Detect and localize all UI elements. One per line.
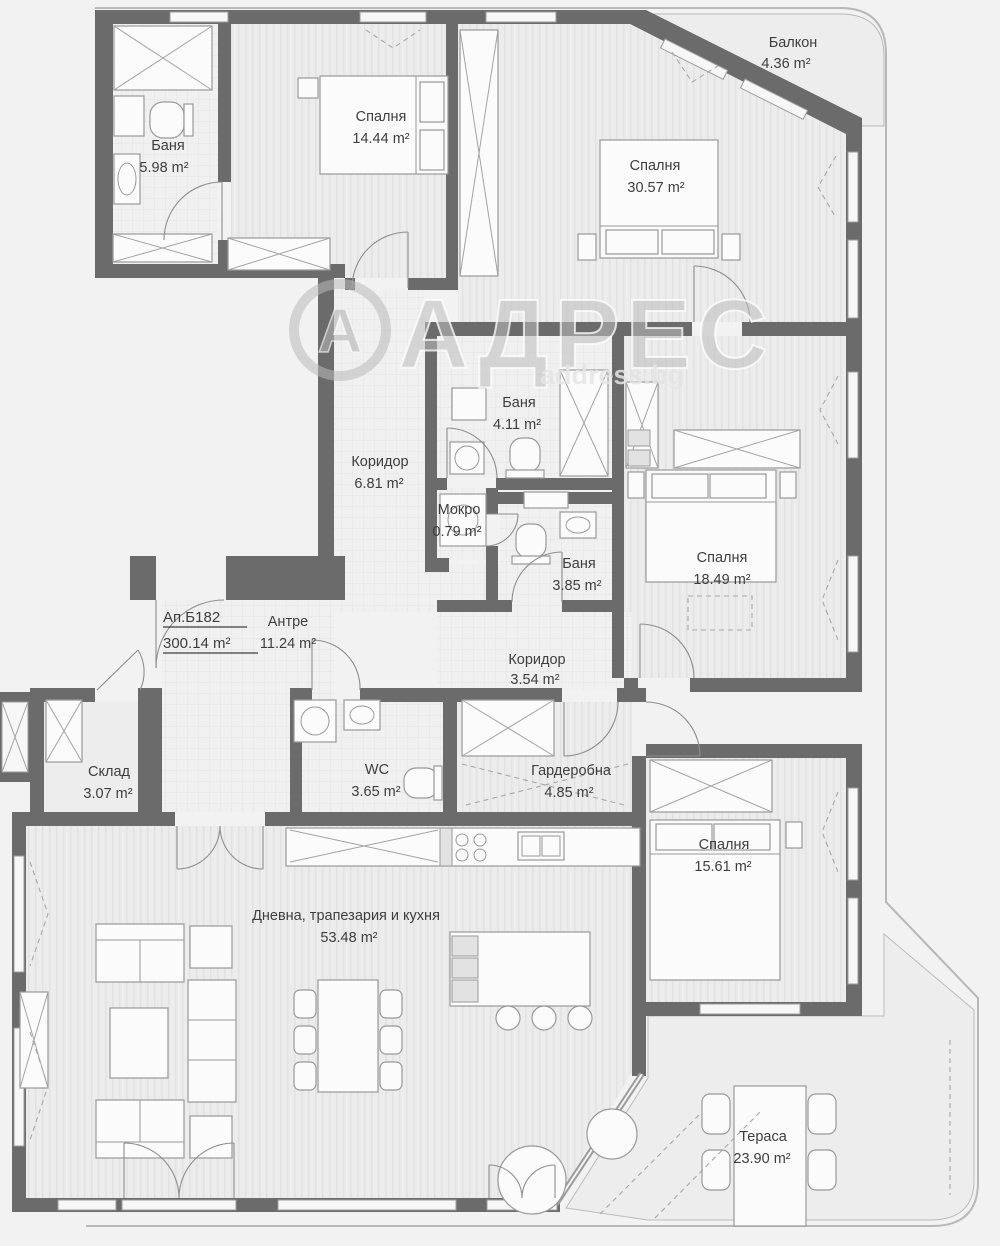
room-name: Антре — [268, 614, 308, 630]
room-name: Гардеробна — [531, 763, 612, 779]
room-area: 14.44 m² — [352, 131, 409, 147]
round-table-icon — [587, 1109, 637, 1159]
coffee-table — [110, 1008, 168, 1078]
room-area: 6.81 m² — [354, 476, 403, 492]
round-table-icon — [498, 1146, 566, 1214]
room-area: 0.79 m² — [432, 524, 481, 540]
room-area: 5.98 m² — [139, 160, 188, 176]
brand-site-text: address.bg — [540, 360, 684, 390]
room-name: Спалня — [699, 837, 750, 853]
room-area: 30.57 m² — [627, 180, 684, 196]
room-area: 4.36 m² — [761, 56, 810, 72]
apartment-number: Ап.Б182 — [163, 609, 220, 626]
room-name: Коридор — [508, 652, 565, 668]
room-name: Мокро — [438, 502, 481, 518]
furniture-dining — [294, 980, 402, 1092]
room-area: 15.61 m² — [694, 859, 751, 875]
dining-table — [318, 980, 378, 1092]
stool-icon — [568, 1006, 592, 1030]
room-name: Коридор — [351, 454, 408, 470]
floor-plan-drawing: Балкон 4.36 m² Спалня 14.44 m² Спалня 30… — [0, 0, 1000, 1246]
room-area: 23.90 m² — [733, 1151, 790, 1167]
room-name: Склад — [88, 764, 131, 780]
room-name: Дневна, трапезария и кухня — [252, 908, 440, 924]
room-name: Баня — [562, 556, 595, 572]
sink-icon — [560, 512, 596, 538]
room-name: Тераса — [739, 1129, 787, 1145]
brand-logo-letter: А — [318, 297, 363, 366]
apartment-total-area: 300.14 m² — [163, 635, 231, 652]
room-area: 3.65 m² — [351, 784, 400, 800]
room-area: 4.11 m² — [493, 417, 541, 433]
room-name: Баня — [502, 395, 535, 411]
toilet-icon — [150, 102, 184, 138]
kitchen-sink-icon — [518, 832, 564, 860]
room-name: Спалня — [697, 550, 748, 566]
floor-plan: Балкон 4.36 m² Спалня 14.44 m² Спалня 30… — [0, 0, 1000, 1246]
room-name: Балкон — [769, 35, 818, 51]
room-area: 3.85 m² — [552, 578, 601, 594]
stool-icon — [532, 1006, 556, 1030]
sink-icon — [344, 700, 380, 730]
furniture-sklad — [46, 700, 82, 762]
neighbor-window — [2, 702, 28, 772]
toilet-icon — [510, 438, 540, 472]
room-name: Спалня — [630, 158, 681, 174]
stool-icon — [496, 1006, 520, 1030]
toilet-icon — [404, 768, 438, 798]
room-area: 11.24 m² — [260, 636, 316, 652]
room-area: 53.48 m² — [320, 930, 377, 946]
room-name: WC — [365, 762, 389, 778]
room-area: 4.85 m² — [544, 785, 593, 801]
room-area: 3.54 m² — [510, 672, 559, 688]
room-name: Баня — [151, 138, 184, 154]
washing-machine-icon — [294, 700, 336, 742]
room-name: Спалня — [356, 109, 407, 125]
toilet-icon — [516, 524, 546, 558]
room-area: 3.07 m² — [83, 786, 132, 802]
room-area: 18.49 m² — [693, 572, 750, 588]
